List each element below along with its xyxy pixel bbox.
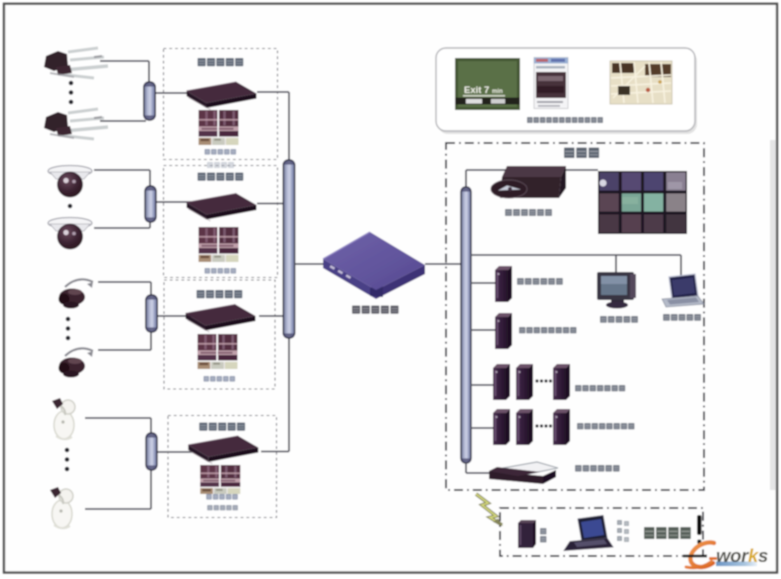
svg-text:works: works — [716, 545, 768, 566]
